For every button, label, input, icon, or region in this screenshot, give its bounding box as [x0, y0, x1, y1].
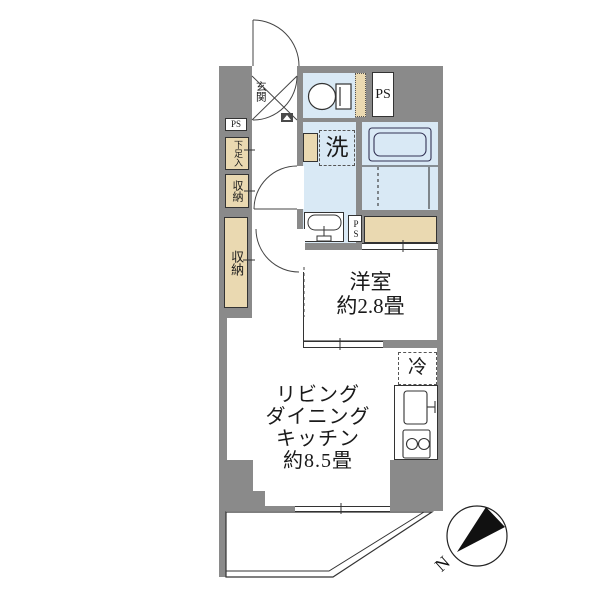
washroom-door — [254, 166, 297, 209]
western-room-door — [256, 229, 304, 317]
floorplan-linework: N — [0, 0, 600, 600]
compass-icon: N — [431, 506, 507, 575]
kitchen-sink-icon — [404, 391, 435, 424]
door-ticks — [243, 150, 403, 514]
compass-north-label: N — [431, 552, 454, 576]
floorplan: 玄関 PS 下足入 収納 収納 PS 洗 PS 洋室 約2.8畳 リビング ダイ… — [0, 0, 600, 600]
bathtub-icon — [362, 128, 438, 209]
balcony — [226, 512, 432, 577]
alarm-icon — [281, 113, 293, 122]
toilet-icon — [309, 84, 352, 110]
stove-icon — [403, 430, 430, 458]
entrance-door — [253, 20, 299, 66]
washbasin-icon — [308, 215, 341, 241]
